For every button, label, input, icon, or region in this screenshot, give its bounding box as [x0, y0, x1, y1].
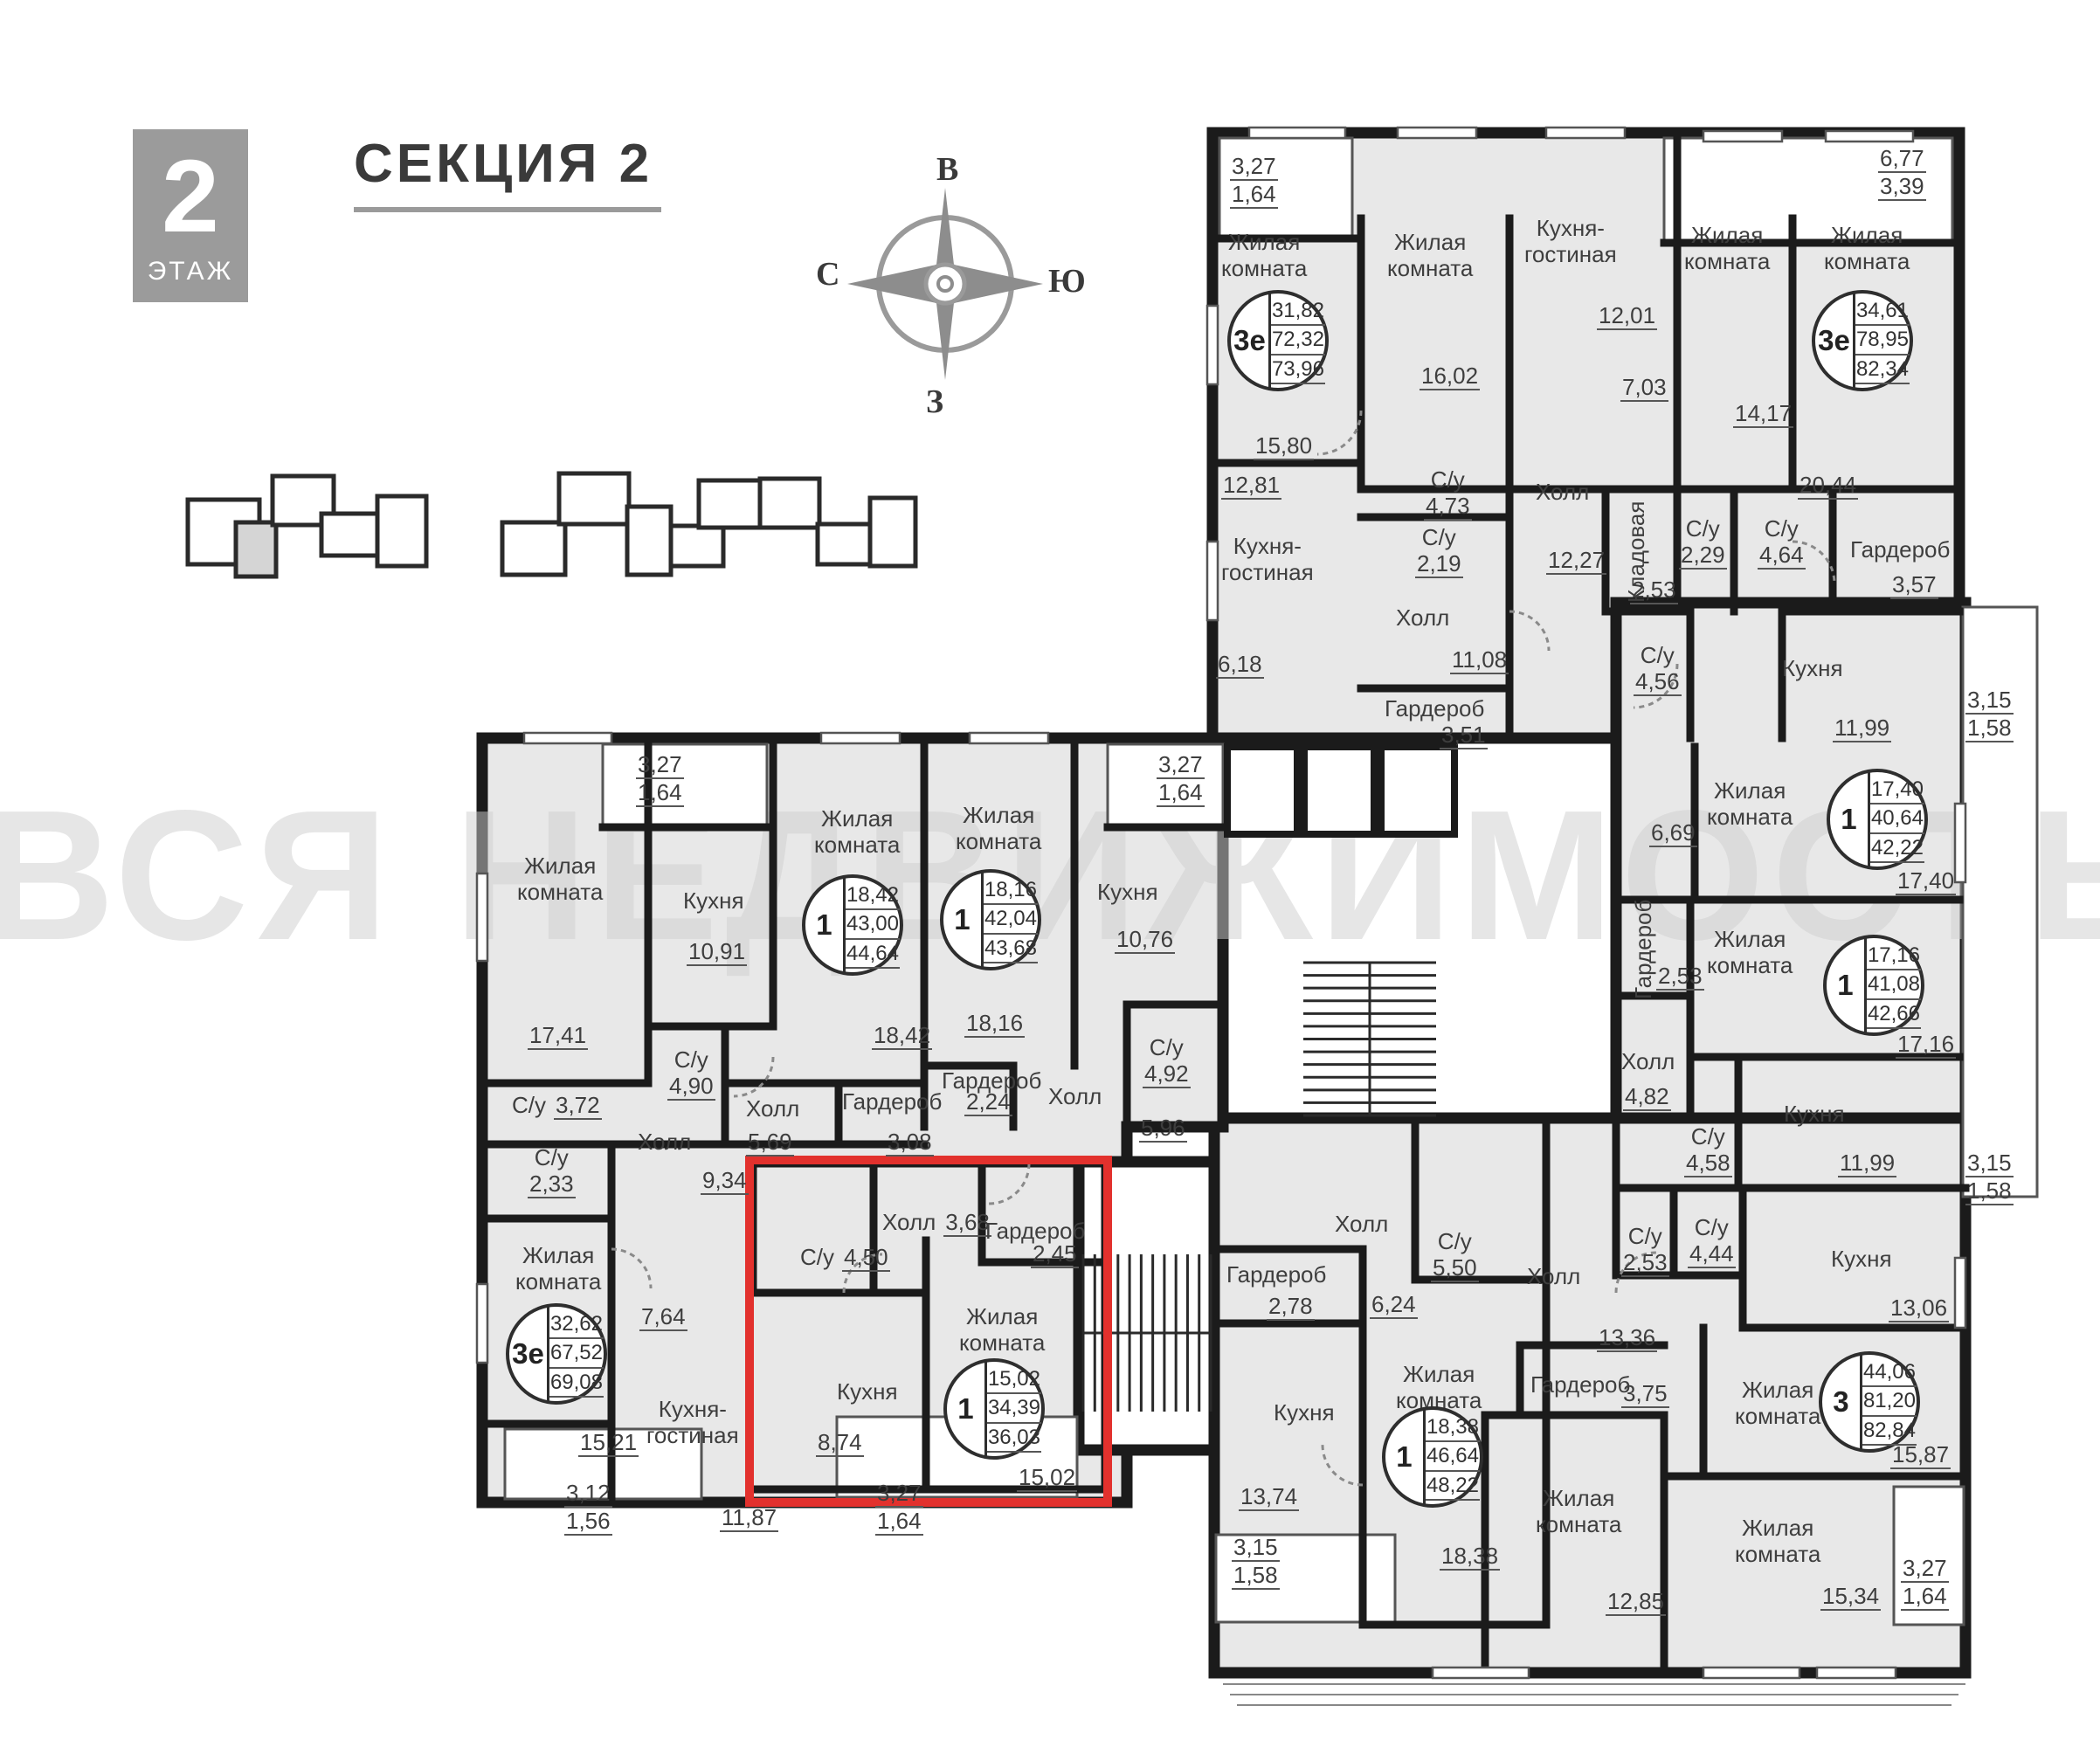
plan-label: Жилая комната — [1387, 229, 1473, 281]
plan-label: Жилая комната — [1536, 1485, 1621, 1537]
room-area: 3,75 — [1621, 1380, 1669, 1408]
apartment-type: 3 — [1822, 1355, 1862, 1449]
room-name: Жилая комната — [1684, 222, 1770, 274]
room-area: 6,77 — [1878, 145, 1926, 173]
room-area: 20,44 — [1798, 472, 1858, 500]
room-name: Холл — [1048, 1083, 1102, 1109]
apartment-total: 42,22 — [1870, 834, 1924, 863]
plan-label: Холл — [1396, 604, 1449, 631]
room-area: 18,38 — [1440, 1543, 1500, 1571]
room-area: 17,41 — [528, 1022, 588, 1050]
room-area: 2,19 — [1415, 550, 1463, 578]
room-area: 5,96 — [1139, 1115, 1187, 1143]
room-name: С/у — [528, 1144, 576, 1170]
plan-label: 14,17 — [1733, 400, 1793, 428]
room-name: Кухня- гостиная — [1524, 215, 1617, 267]
room-area: 4,44 — [1688, 1240, 1736, 1268]
plan-label: 8,74 — [816, 1429, 864, 1457]
plan-label: 6,69 — [1649, 819, 1697, 847]
room-name: Кухня- гостиная — [646, 1396, 739, 1448]
plan-label: Холл — [638, 1129, 691, 1155]
plan-label: 18,16 — [964, 1010, 1025, 1038]
plan-label: 3,75 — [1621, 1380, 1669, 1408]
plan-label: С/у4,58 — [1684, 1123, 1732, 1177]
apartment-living: 32,62 — [549, 1310, 604, 1339]
room-name: С/у — [1634, 642, 1682, 668]
site-plan-minimap — [188, 473, 915, 577]
room-name: С/у — [1415, 524, 1463, 550]
plan-label: С/у2,53 — [1621, 1223, 1669, 1277]
plan-label: Жилая комната — [1684, 222, 1770, 274]
room-name: Кухня — [1782, 655, 1843, 681]
plan-label: 20,44 — [1798, 472, 1858, 500]
plan-label: Жилая комната — [1707, 926, 1793, 978]
room-name: С/у — [1688, 1214, 1736, 1240]
plan-label: Гардероб — [1226, 1261, 1326, 1288]
plan-label: 2,53 — [1630, 577, 1678, 604]
plan-label: 11,87 — [720, 1504, 778, 1532]
room-name: Жилая комната — [959, 1303, 1045, 1356]
plan-label: 10,76 — [1115, 926, 1175, 954]
plan-label: Жилая комната — [1707, 777, 1793, 830]
plan-label: 6,773,39 — [1878, 145, 1926, 201]
plan-label: С/у4,90 — [667, 1046, 715, 1101]
room-name: Холл — [1621, 1048, 1675, 1074]
plan-label: 12,81 — [1221, 472, 1281, 500]
room-name: Жилая комната — [956, 802, 1041, 854]
plan-label: Жилая комната — [959, 1303, 1045, 1356]
plan-label: Жилая комната — [814, 805, 900, 858]
apartment-living: 44,06 — [1862, 1358, 1917, 1387]
apartment-total: 42,66 — [1867, 1000, 1921, 1029]
room-name: Жилая комната — [1536, 1485, 1621, 1537]
plan-label: Кухня — [1782, 655, 1843, 681]
plan-label: 9,34 — [701, 1167, 749, 1195]
room-area: 13,36 — [1597, 1324, 1657, 1352]
room-area: 3,51 — [1440, 722, 1488, 749]
room-name: Гардероб — [1385, 695, 1484, 722]
room-name: Жилая комната — [1735, 1515, 1820, 1567]
terrace-lines — [1223, 1684, 1965, 1705]
compass-rose — [847, 188, 1043, 380]
apartment-total: 44,64 — [846, 940, 900, 969]
plan-label: 17,16 — [1896, 1031, 1956, 1059]
apartment-badge: 118,4243,0044,64 — [802, 874, 903, 976]
plan-label: 15,34 — [1820, 1583, 1881, 1611]
plan-label: 3,271,64 — [636, 751, 684, 807]
plan-label: 2,24 — [964, 1088, 1012, 1116]
room-area: 6,24 — [1370, 1291, 1418, 1319]
room-area: 2,53 — [1656, 963, 1704, 991]
room-area: 11,87 — [720, 1504, 778, 1532]
room-area: 12,85 — [1606, 1588, 1666, 1616]
apartment-type: 3е — [1815, 293, 1855, 388]
room-area: 4,92 — [1143, 1060, 1191, 1088]
plan-label: Кухня — [1097, 879, 1158, 905]
apartment-type: 1 — [1827, 938, 1867, 1032]
plan-label: С/у4,44 — [1688, 1214, 1736, 1268]
room-area: 3,27 — [1157, 751, 1205, 779]
apartment-area: 41,08 — [1867, 970, 1921, 999]
plan-label: Жилая комната — [1735, 1377, 1820, 1429]
room-name: Холл — [1335, 1211, 1388, 1237]
apartment-type: 3е — [509, 1307, 549, 1401]
apartment-area: 78,95 — [1855, 326, 1910, 355]
plan-label: С/у3,72 — [512, 1092, 602, 1120]
room-area: 3,27 — [1230, 153, 1278, 181]
plan-label: 7,64 — [639, 1303, 687, 1331]
apartment-badge: 118,1642,0443,68 — [940, 869, 1041, 970]
plan-label: 3,08 — [886, 1129, 934, 1157]
plan-label: Холл — [746, 1095, 799, 1122]
plan-label: 11,99 — [1838, 1150, 1896, 1177]
room-name: Кухня — [683, 887, 744, 914]
room-name: С/у — [1143, 1034, 1191, 1060]
room-area: 4,73 — [1424, 493, 1472, 521]
apartment-living: 15,02 — [987, 1365, 1041, 1394]
room-area: 9,34 — [701, 1167, 749, 1195]
plan-label: 10,91 — [687, 938, 747, 966]
room-name: Холл — [1527, 1263, 1580, 1289]
plan-label: С/у4,92 — [1143, 1034, 1191, 1088]
room-area: 3,27 — [875, 1480, 923, 1508]
apartment-badge: 115,0234,3936,03 — [943, 1358, 1045, 1460]
apartment-area: 40,64 — [1870, 804, 1924, 833]
apartment-living: 17,40 — [1870, 776, 1924, 804]
room-area: 12,27 — [1546, 547, 1606, 575]
plan-label: Кухня- гостиная — [1524, 215, 1617, 267]
room-area: 11,08 — [1450, 646, 1509, 674]
plan-label: 12,85 — [1606, 1588, 1666, 1616]
plan-label: Жилая комната — [515, 1242, 601, 1295]
apartment-total: 73,96 — [1271, 356, 1325, 384]
apartment-type: 1 — [805, 878, 846, 972]
room-area: 18,16 — [964, 1010, 1025, 1038]
room-name: Гардероб — [1850, 536, 1950, 563]
apartment-total: 69,08 — [549, 1369, 604, 1398]
room-name: Кухня — [1784, 1101, 1845, 1127]
plan-label: 17,41 — [528, 1022, 588, 1050]
plan-label: Холл — [1536, 479, 1589, 505]
room-name: Холл — [746, 1095, 799, 1122]
room-area: 4,64 — [1758, 542, 1806, 570]
room-name: Жилая комната — [1221, 229, 1307, 281]
plan-label: Жилая комната — [1824, 222, 1910, 274]
apartment-total: 43,68 — [984, 935, 1038, 963]
room-name: Кухня — [1097, 879, 1158, 905]
plan-label: Жилая комната — [1396, 1361, 1482, 1413]
apartment-type: 3е — [1231, 293, 1271, 388]
room-area: 1,58 — [1965, 1177, 2014, 1205]
plan-label: Гардероб — [1630, 900, 1656, 999]
apartment-badge: 3е32,6267,5269,08 — [506, 1303, 607, 1405]
room-name: Жилая комната — [814, 805, 900, 858]
plan-label: 13,74 — [1239, 1483, 1299, 1511]
room-name: С/у — [1431, 1228, 1479, 1254]
plan-label: Кухня- гостиная — [646, 1396, 739, 1448]
plan-label: 5,69 — [746, 1129, 794, 1157]
section-title: СЕКЦИЯ 2 — [354, 133, 661, 212]
room-area: 3,15 — [1965, 687, 2014, 715]
room-area: 4,90 — [667, 1073, 715, 1101]
room-name: С/у — [667, 1046, 715, 1073]
plan-label: 13,36 — [1597, 1324, 1657, 1352]
plan-label: 6,18 — [1216, 651, 1264, 679]
plan-label: 15,80 — [1254, 432, 1314, 460]
room-area: 7,03 — [1620, 374, 1668, 402]
apartment-area: 72,32 — [1271, 326, 1325, 355]
plan-label: Кухня- гостиная — [1221, 533, 1314, 585]
room-area: 2,78 — [1267, 1293, 1315, 1321]
room-area: 5,69 — [746, 1129, 794, 1157]
apartment-total: 36,03 — [987, 1424, 1041, 1453]
room-area: 1,64 — [875, 1508, 923, 1536]
room-name: С/у — [1684, 1123, 1732, 1150]
room-area: 1,64 — [1901, 1583, 1949, 1611]
apartment-total: 82,34 — [1855, 356, 1910, 384]
plan-label: Кухня — [1784, 1101, 1845, 1127]
plan-label: Гардероб — [1385, 695, 1484, 722]
plan-label: 18,42 — [872, 1022, 932, 1050]
room-area: 1,58 — [1232, 1562, 1280, 1590]
apartment-total: 82,84 — [1862, 1417, 1917, 1446]
room-area: 5,50 — [1431, 1254, 1479, 1282]
plan-label: 12,01 — [1597, 302, 1657, 330]
plan-label: Холл — [1048, 1083, 1102, 1109]
room-name: Гардероб — [842, 1088, 942, 1115]
plan-label: Жилая комната — [1735, 1515, 1820, 1567]
floor-word: ЭТАЖ — [133, 257, 248, 287]
apartment-type: 1 — [947, 1362, 987, 1456]
room-name: С/у — [800, 1244, 834, 1270]
plan-label: С/у4,64 — [1758, 515, 1806, 570]
plan-label: 5,96 — [1139, 1115, 1187, 1143]
apartment-area: 81,20 — [1862, 1387, 1917, 1416]
floor-number-badge: 2 ЭТАЖ — [133, 129, 248, 302]
plan-label: 15,21 — [578, 1429, 639, 1457]
room-area: 16,02 — [1420, 363, 1480, 390]
elevators — [1227, 747, 1454, 834]
plan-label: Кухня — [1274, 1399, 1335, 1426]
room-area: 3,12 — [564, 1480, 612, 1508]
apartment-area: 34,39 — [987, 1394, 1041, 1423]
apartment-type: 1 — [1830, 772, 1870, 867]
floor-plan-page: ВСЯ НЕДВИЖИМОСТЬ — [0, 0, 2100, 1747]
plan-label: С/у4,56 — [1634, 642, 1682, 696]
plan-label: 3,271,64 — [1157, 751, 1205, 807]
room-area: 3,27 — [1901, 1555, 1949, 1583]
apartment-living: 18,16 — [984, 876, 1038, 905]
room-area: 2,33 — [528, 1170, 576, 1198]
room-name: Холл — [638, 1129, 691, 1155]
room-area: 3,72 — [554, 1092, 602, 1120]
room-area: 1,56 — [564, 1508, 612, 1536]
room-area: 15,21 — [578, 1429, 639, 1457]
room-area: 3,57 — [1890, 571, 1938, 599]
plan-label: 2,45 — [1031, 1240, 1079, 1268]
room-name: Жилая комната — [517, 853, 603, 905]
room-name: Кухня — [1274, 1399, 1335, 1426]
apartment-badge: 117,1641,0842,66 — [1823, 935, 1924, 1036]
room-name: С/у — [1621, 1223, 1669, 1249]
compass-top: В — [936, 150, 958, 189]
room-area: 14,17 — [1733, 400, 1793, 428]
apartment-living: 34,61 — [1855, 297, 1910, 326]
room-area: 13,06 — [1889, 1295, 1949, 1322]
floor-number: 2 — [133, 140, 248, 253]
plan-label: 16,02 — [1420, 363, 1480, 390]
plan-label: Холл — [1527, 1263, 1580, 1289]
apartment-area: 46,64 — [1426, 1442, 1480, 1471]
plan-label: Гардероб — [1530, 1371, 1630, 1398]
room-area: 15,80 — [1254, 432, 1314, 460]
room-area: 15,02 — [1017, 1464, 1077, 1492]
plan-label: 3,57 — [1890, 571, 1938, 599]
plan-label: С/у4,50 — [800, 1244, 890, 1272]
apartment-badge: 3е34,6178,9582,34 — [1812, 290, 1913, 391]
room-area: 2,29 — [1679, 542, 1727, 570]
apartment-living: 18,42 — [846, 881, 900, 910]
plan-label: 6,24 — [1370, 1291, 1418, 1319]
room-area: 4,56 — [1634, 668, 1682, 696]
room-name: С/у — [512, 1092, 546, 1118]
room-area: 12,81 — [1221, 472, 1281, 500]
apartment-area: 67,52 — [549, 1339, 604, 1368]
plan-label: Холл — [1621, 1048, 1675, 1074]
plan-label: Холл3,68 — [882, 1209, 991, 1237]
plan-label: С/у2,19 — [1415, 524, 1463, 578]
room-area: 1,58 — [1965, 715, 2014, 742]
room-area: 17,16 — [1896, 1031, 1956, 1059]
room-area: 4,58 — [1684, 1150, 1732, 1177]
apartment-type: 1 — [1385, 1410, 1426, 1504]
room-name: С/у — [1424, 466, 1472, 493]
plan-label: Кухня — [837, 1378, 898, 1405]
plan-label: 3,121,56 — [564, 1480, 612, 1536]
room-name: Жилая комната — [1396, 1361, 1482, 1413]
room-name: С/у — [1679, 515, 1727, 542]
room-name: Холл — [882, 1209, 936, 1235]
compass-bottom: З — [926, 383, 943, 421]
room-area: 18,42 — [872, 1022, 932, 1050]
room-area: 2,45 — [1031, 1240, 1079, 1268]
room-name: Жилая комната — [1707, 926, 1793, 978]
room-name: Гардероб — [1226, 1261, 1326, 1288]
room-name: Жилая комната — [1387, 229, 1473, 281]
plan-label: Жилая комната — [1221, 229, 1307, 281]
plan-label: 3,271,64 — [875, 1480, 923, 1536]
room-area: 7,64 — [639, 1303, 687, 1331]
plan-label: 3,271,64 — [1901, 1555, 1949, 1611]
plan-label: Жилая комната — [956, 802, 1041, 854]
room-area: 2,24 — [964, 1088, 1012, 1116]
plan-label: 2,78 — [1267, 1293, 1315, 1321]
apartment-total: 48,22 — [1426, 1472, 1480, 1501]
plan-label: Кухня — [1831, 1246, 1892, 1272]
plan-label: 3,271,64 — [1230, 153, 1278, 209]
room-area: 12,01 — [1597, 302, 1657, 330]
room-area: 13,74 — [1239, 1483, 1299, 1511]
apartment-living: 31,82 — [1271, 297, 1325, 326]
room-area: 1,64 — [636, 779, 684, 807]
room-area: 6,69 — [1649, 819, 1697, 847]
apartment-area: 42,04 — [984, 905, 1038, 934]
plan-label: 4,82 — [1623, 1083, 1671, 1111]
room-area: 3,68 — [943, 1209, 991, 1237]
room-name: Гардероб — [1630, 900, 1656, 999]
room-area: 3,15 — [1965, 1150, 2014, 1177]
compass-right: Ю — [1048, 262, 1086, 300]
plan-label: Гардероб — [1850, 536, 1950, 563]
room-area: 10,91 — [687, 938, 747, 966]
plan-label: 3,151,58 — [1232, 1534, 1280, 1590]
plan-label: 11,08 — [1450, 646, 1509, 674]
room-name: Жилая комната — [1824, 222, 1910, 274]
apartment-area: 43,00 — [846, 910, 900, 939]
plan-label: Жилая комната — [517, 853, 603, 905]
plan-label: Холл — [1335, 1211, 1388, 1237]
room-name: Холл — [1536, 479, 1589, 505]
plan-label: Гардероб — [842, 1088, 942, 1115]
apartment-badge: 3е31,8272,3273,96 — [1227, 290, 1329, 391]
room-name: Жилая комната — [1735, 1377, 1820, 1429]
plan-label: 13,06 — [1889, 1295, 1949, 1322]
room-area: 1,64 — [1157, 779, 1205, 807]
room-area: 4,50 — [842, 1244, 890, 1272]
plan-label: 2,53 — [1656, 963, 1704, 991]
apartment-living: 17,16 — [1867, 942, 1921, 970]
room-area: 15,34 — [1820, 1583, 1881, 1611]
plan-label: С/у4,73 — [1424, 466, 1472, 521]
plan-label: 11,99 — [1833, 715, 1891, 742]
room-area: 17,40 — [1896, 867, 1956, 895]
room-area: 8,74 — [816, 1429, 864, 1457]
room-name: С/у — [1758, 515, 1806, 542]
room-area: 2,53 — [1630, 577, 1678, 604]
room-area: 11,99 — [1833, 715, 1891, 742]
room-area: 3,39 — [1878, 173, 1926, 201]
plan-label: 12,27 — [1546, 547, 1606, 575]
plan-label: Кухня — [683, 887, 744, 914]
apartment-badge: 118,3846,6448,22 — [1382, 1406, 1483, 1508]
room-name: Кухня — [1831, 1246, 1892, 1272]
plan-label: 18,38 — [1440, 1543, 1500, 1571]
plan-label: 3,151,58 — [1965, 687, 2014, 742]
compass-left: С — [816, 255, 839, 293]
room-area: 2,53 — [1621, 1249, 1669, 1277]
plan-label: 3,51 — [1440, 722, 1488, 749]
room-name: Жилая комната — [1707, 777, 1793, 830]
room-area: 1,64 — [1230, 181, 1278, 209]
apartment-badge: 344,0681,2082,84 — [1819, 1351, 1920, 1453]
plan-label: С/у5,50 — [1431, 1228, 1479, 1282]
room-area: 3,08 — [886, 1129, 934, 1157]
room-name: Гардероб — [1530, 1371, 1630, 1398]
room-name: Кухня- гостиная — [1221, 533, 1314, 585]
room-area: 3,15 — [1232, 1534, 1280, 1562]
plan-label: С/у2,33 — [528, 1144, 576, 1198]
plan-label: 15,02 — [1017, 1464, 1077, 1492]
apartment-badge: 117,4040,6442,22 — [1827, 769, 1928, 870]
room-name: Кухня — [837, 1378, 898, 1405]
plan-label: 7,03 — [1620, 374, 1668, 402]
room-area: 6,18 — [1216, 651, 1264, 679]
room-name: Холл — [1396, 604, 1449, 631]
plan-label: 17,40 — [1896, 867, 1956, 895]
room-area: 4,82 — [1623, 1083, 1671, 1111]
plan-label: С/у2,29 — [1679, 515, 1727, 570]
room-area: 10,76 — [1115, 926, 1175, 954]
